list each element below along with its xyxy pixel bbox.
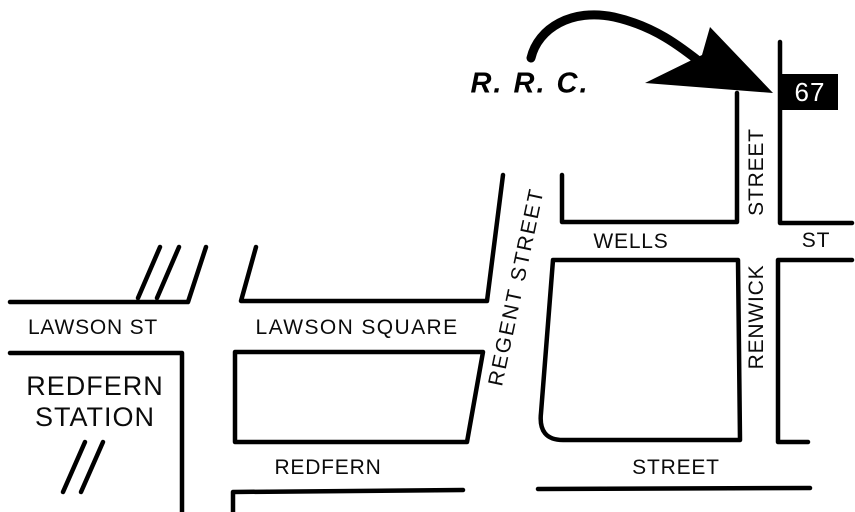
central-block [541, 260, 740, 440]
railway-tick-icon [81, 442, 103, 492]
redfern-st-south-east-line [538, 488, 810, 489]
rrc-annotation-label: R. R. C. [470, 68, 589, 101]
railway-tick-icon [138, 247, 160, 298]
destination-arrow-shaft [531, 15, 705, 66]
redfern-station-label-line1: REDFERN [26, 371, 164, 402]
redfern-street-label: REDFERN [274, 456, 381, 480]
renwick-street-suffix-label: STREET [745, 128, 769, 216]
railway-tick-icon [157, 247, 179, 298]
redfern-st-south-west-line [233, 490, 463, 512]
lawson-square-regent-line [241, 175, 503, 301]
renwick-east-upper-line [780, 42, 852, 223]
lawson-square-block [235, 352, 483, 442]
lawson-square-label: LAWSON SQUARE [256, 316, 459, 340]
redfern-station-label: REDFERN STATION [26, 371, 164, 433]
wells-north-block [562, 93, 737, 222]
destination-marker-67: 67 [782, 74, 838, 110]
map-line-art [0, 0, 855, 512]
destination-marker-number: 67 [795, 77, 826, 108]
lawson-st-label: LAWSON ST [28, 316, 158, 340]
railway-tick-icon [63, 442, 85, 492]
redfern-station-label-line2: STATION [26, 402, 164, 433]
renwick-street-label: RENWICK [745, 265, 769, 370]
renwick-east-lower-line [778, 260, 852, 442]
wells-street-label: WELLS [593, 230, 668, 254]
street-map: LAWSON ST LAWSON SQUARE WELLS ST REGENT … [0, 0, 855, 512]
wells-st-abbrev-label: ST [802, 229, 830, 253]
redfern-street-suffix-label: STREET [632, 456, 720, 480]
